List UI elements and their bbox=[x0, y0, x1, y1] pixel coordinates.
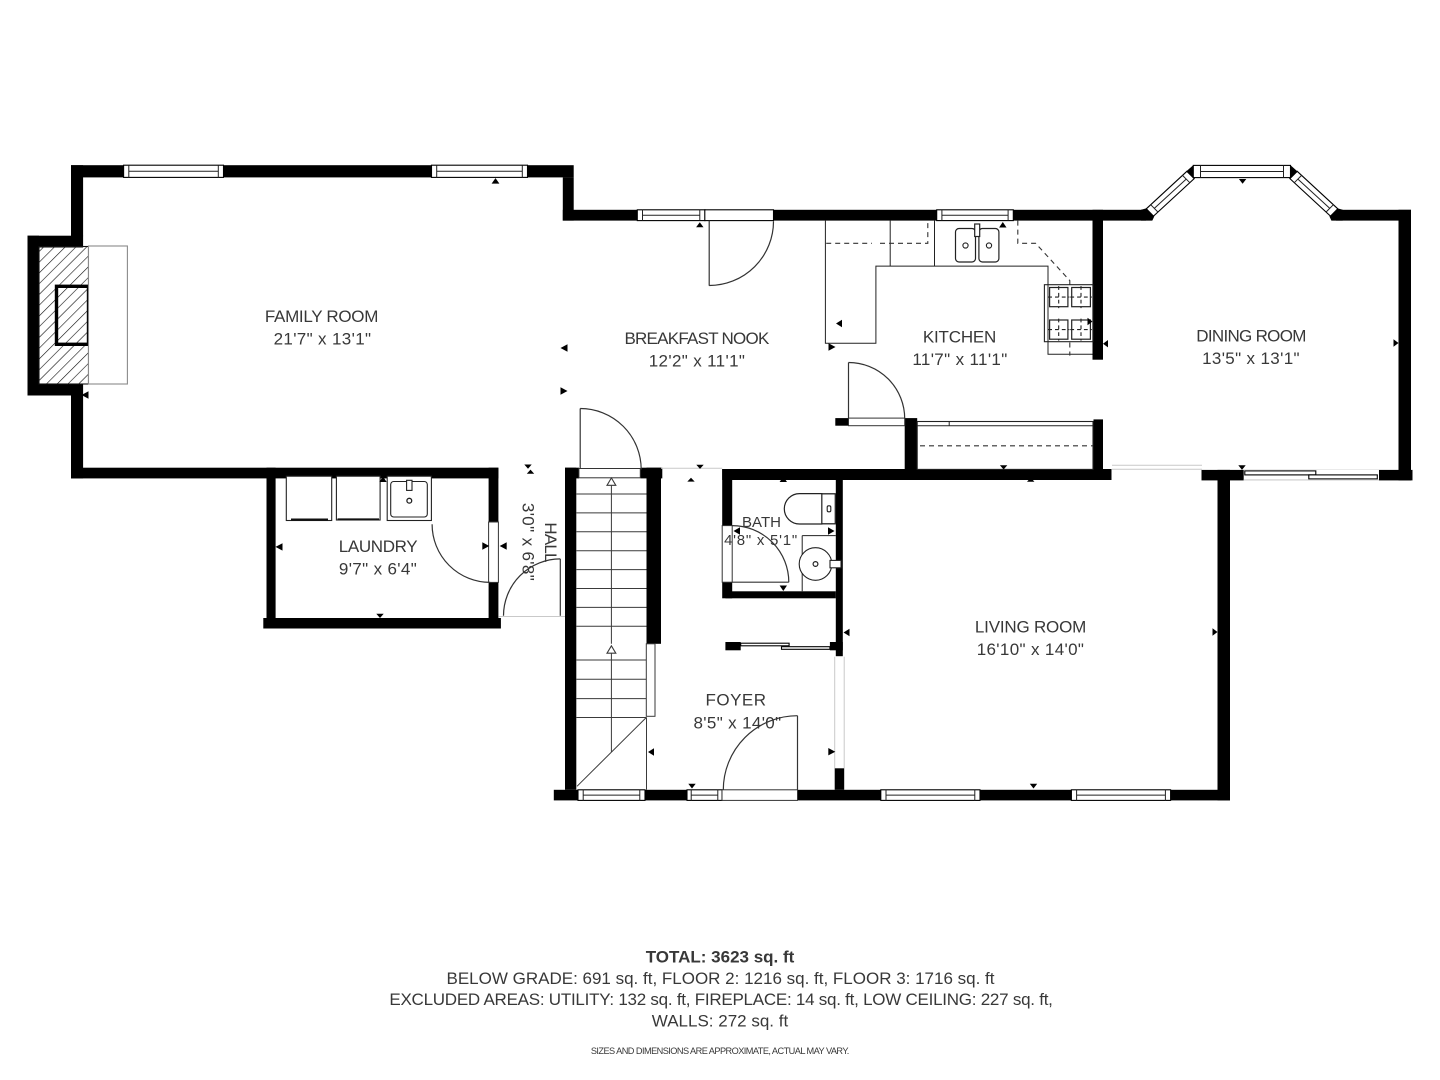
svg-text:DINING ROOM: DINING ROOM bbox=[1196, 327, 1305, 346]
svg-text:EXCLUDED AREAS: UTILITY: 132 s: EXCLUDED AREAS: UTILITY: 132 sq. ft, FIR… bbox=[389, 990, 1052, 1009]
svg-text:KITCHEN: KITCHEN bbox=[923, 328, 996, 347]
svg-text:WALLS: 272 sq. ft: WALLS: 272 sq. ft bbox=[652, 1011, 789, 1030]
svg-text:FAMILY ROOM: FAMILY ROOM bbox=[265, 307, 378, 326]
svg-text:16'10" x 14'0": 16'10" x 14'0" bbox=[977, 640, 1085, 659]
svg-text:TOTAL: 3623 sq. ft: TOTAL: 3623 sq. ft bbox=[646, 948, 795, 967]
svg-text:SIZES AND DIMENSIONS ARE APPRO: SIZES AND DIMENSIONS ARE APPROXIMATE, AC… bbox=[591, 1046, 849, 1056]
svg-text:FOYER: FOYER bbox=[705, 691, 766, 710]
svg-text:4'8" x 5'1": 4'8" x 5'1" bbox=[724, 532, 798, 549]
svg-text:13'5" x 13'1": 13'5" x 13'1" bbox=[1202, 349, 1300, 368]
svg-text:LAUNDRY: LAUNDRY bbox=[339, 537, 417, 556]
svg-text:9'7" x 6'4": 9'7" x 6'4" bbox=[339, 560, 417, 579]
svg-text:12'2" x 11'1": 12'2" x 11'1" bbox=[649, 352, 746, 371]
svg-text:21'7" x 13'1": 21'7" x 13'1" bbox=[274, 329, 372, 348]
svg-text:BREAKFAST NOOK: BREAKFAST NOOK bbox=[624, 329, 770, 348]
svg-text:BELOW GRADE: 691 sq. ft, FLOOR: BELOW GRADE: 691 sq. ft, FLOOR 2: 1216 s… bbox=[446, 969, 994, 988]
svg-text:LIVING ROOM: LIVING ROOM bbox=[975, 617, 1086, 636]
svg-text:11'7" x 11'1": 11'7" x 11'1" bbox=[912, 350, 1007, 369]
svg-text:8'5" x 14'0": 8'5" x 14'0" bbox=[694, 714, 782, 733]
svg-text:BATH: BATH bbox=[742, 514, 781, 531]
svg-text:HALL: HALL bbox=[541, 522, 560, 562]
svg-text:3'0" x 6'8": 3'0" x 6'8" bbox=[519, 503, 538, 581]
